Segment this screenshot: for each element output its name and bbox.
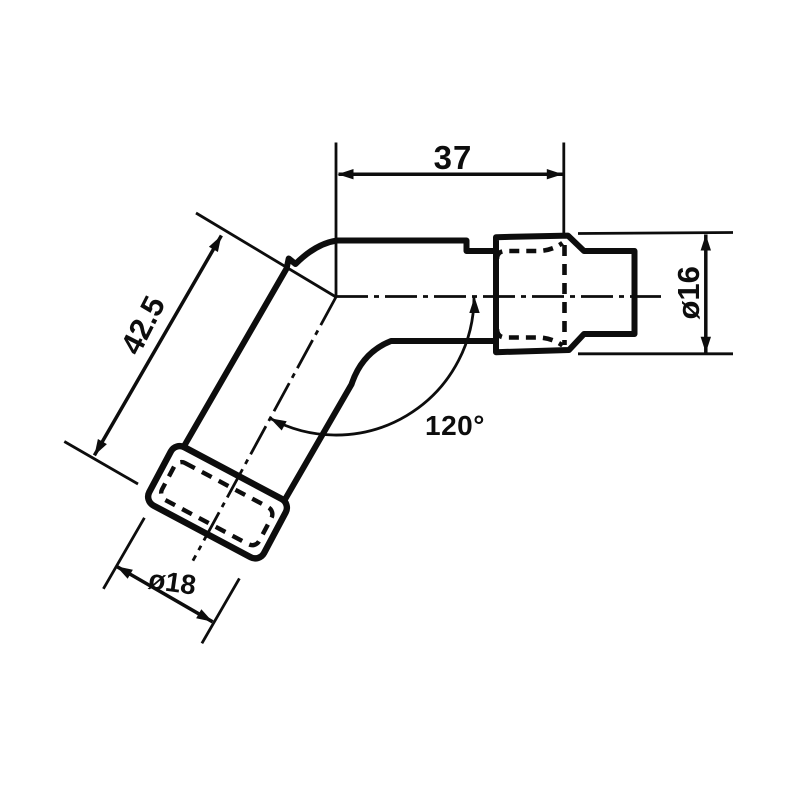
svg-text:ø18: ø18 <box>147 563 198 600</box>
svg-text:37: 37 <box>434 139 473 176</box>
svg-text:120°: 120° <box>425 410 485 441</box>
svg-text:ø16: ø16 <box>671 266 706 319</box>
